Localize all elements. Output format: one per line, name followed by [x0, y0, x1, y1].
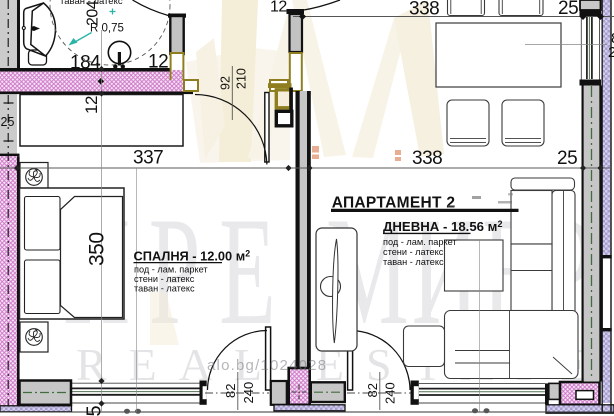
svg-text:25: 25 — [1, 115, 15, 129]
svg-text:338: 338 — [409, 0, 439, 20]
svg-text:25: 25 — [558, 0, 578, 19]
svg-text:350: 350 — [86, 232, 109, 266]
svg-text:стени - латекс: стени - латекс — [134, 274, 195, 284]
svg-text:82: 82 — [365, 383, 380, 397]
svg-text:под - лам. паркет: под - лам. паркет — [134, 265, 208, 275]
svg-text:СПАЛНЯ - 12.00 м2: СПАЛНЯ - 12.00 м2 — [134, 249, 251, 264]
svg-text:210: 210 — [235, 68, 249, 89]
svg-text:240: 240 — [383, 382, 398, 404]
svg-text:alo.bg/1024028: alo.bg/1024028 — [207, 357, 327, 374]
svg-text:12: 12 — [148, 52, 168, 73]
svg-text:338: 338 — [412, 148, 442, 169]
svg-text:таван - латекс: таван - латекс — [134, 284, 195, 294]
svg-text:12: 12 — [82, 96, 101, 114]
svg-text:таван - латекс: таван - латекс — [383, 257, 444, 267]
svg-text:стени - латекс: стени - латекс — [383, 247, 444, 257]
svg-text:R 0,75: R 0,75 — [90, 23, 124, 35]
svg-text:240: 240 — [241, 382, 256, 404]
svg-text:82: 82 — [223, 384, 238, 398]
svg-text:ДНЕВНА - 18.56 м2: ДНЕВНА - 18.56 м2 — [383, 219, 502, 234]
svg-text:под - лам. паркет: под - лам. паркет — [383, 237, 457, 247]
svg-text:12: 12 — [270, 0, 287, 16]
svg-text:92: 92 — [219, 76, 233, 90]
svg-text:205: 205 — [608, 44, 614, 61]
svg-text:337: 337 — [133, 148, 163, 169]
svg-text:25: 25 — [557, 148, 577, 169]
svg-text:5: 5 — [84, 405, 106, 416]
svg-text:184: 184 — [70, 53, 101, 74]
